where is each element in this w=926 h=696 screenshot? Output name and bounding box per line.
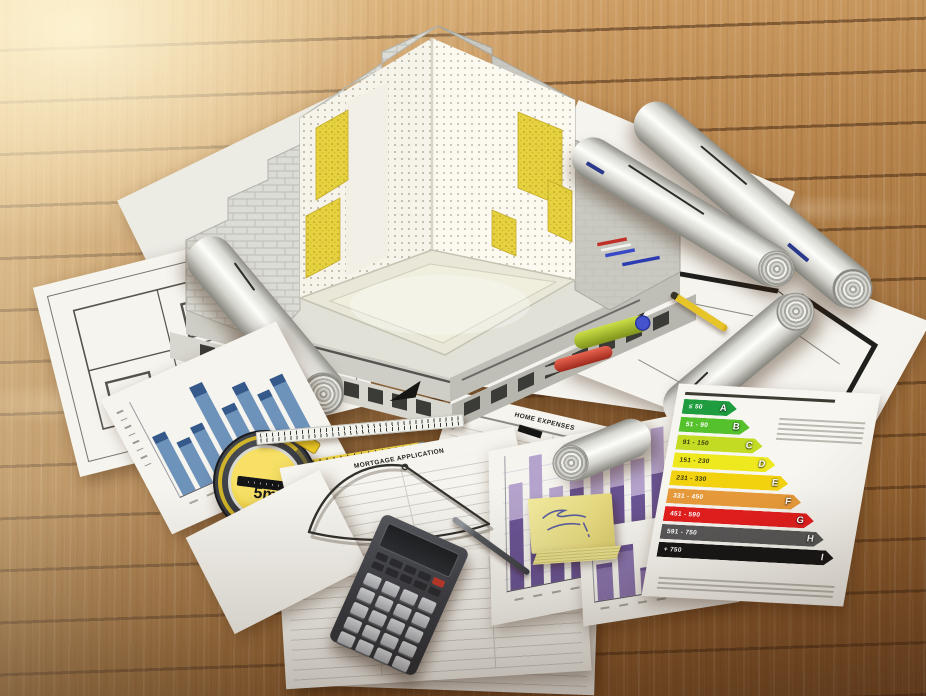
sticky-note-top (528, 493, 616, 554)
energy-class-letter: A (719, 403, 728, 414)
sticky-note (528, 493, 616, 565)
energy-range-label: 91 - 150 (682, 439, 709, 447)
construction-scene: HOME EXPENSES (0, 0, 926, 696)
energy-range-label: 51 - 90 (685, 421, 709, 429)
energy-range-label: + 750 (663, 546, 682, 554)
energy-class-letter: B (732, 421, 741, 432)
bar (617, 544, 635, 597)
energy-class-letter: F (784, 496, 792, 507)
energy-rating-sheet: ≤ 50A51 - 90B91 - 150C151 - 230D231 - 33… (641, 384, 880, 607)
energy-class-letter: G (795, 515, 804, 526)
energy-class-arrow: 51 - 90B (678, 417, 751, 436)
energy-class-arrow: 151 - 230D (672, 452, 776, 472)
bar (596, 563, 614, 601)
energy-class-arrow: ≤ 50A (682, 399, 739, 417)
energy-range-label: ≤ 50 (688, 403, 703, 411)
energy-fine-print (656, 574, 835, 601)
energy-class-arrow: 91 - 150C (675, 435, 764, 454)
bar (509, 483, 524, 591)
plain-panel-left (346, 82, 388, 276)
energy-class-letter: D (758, 459, 767, 470)
energy-rows: ≤ 50A51 - 90B91 - 150C151 - 230D231 - 33… (656, 399, 870, 566)
energy-class-letter: E (771, 478, 779, 489)
floor-highlight (350, 275, 530, 335)
sticky-scribble (528, 493, 616, 554)
energy-range-label: 151 - 230 (679, 457, 710, 466)
energy-class-letter: C (745, 440, 754, 451)
energy-range-label: 231 - 330 (676, 475, 707, 484)
energy-range-label: 451 - 590 (669, 510, 700, 519)
roll-blue-mark (586, 161, 605, 175)
energy-class-letter: H (806, 533, 815, 544)
energy-range-label: 331 - 450 (673, 492, 704, 501)
energy-class-letter: I (820, 552, 825, 563)
energy-range-label: 591 - 750 (666, 528, 697, 537)
